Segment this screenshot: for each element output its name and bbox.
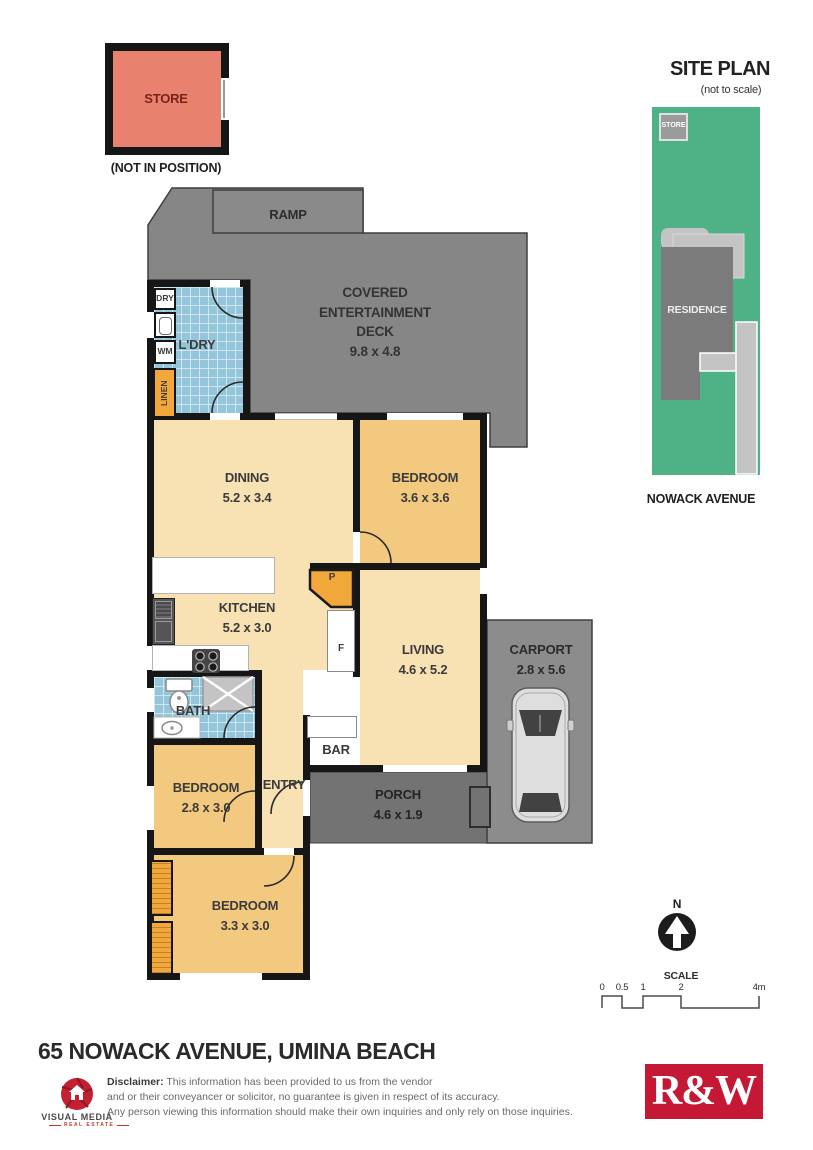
scale-title: SCALE [664, 970, 699, 982]
deck-line3: DECK [319, 322, 431, 342]
bedroom3-name: BEDROOM [212, 896, 279, 916]
store-unit-note: (NOT IN POSITION) [111, 161, 222, 175]
carport-name: CARPORT [510, 640, 573, 660]
carport-label: CARPORT 2.8 x 5.6 [510, 640, 573, 680]
deck-label: COVERED ENTERTAINMENT DECK 9.8 x 4.8 [319, 283, 431, 361]
carport-dims: 2.8 x 5.6 [510, 660, 573, 680]
bedroom2-dims: 2.8 x 3.0 [173, 798, 240, 818]
visual-media-name: VISUAL MEDIA [41, 1112, 113, 1122]
bar-label: BAR [322, 740, 350, 760]
washer-label: WM [157, 346, 172, 356]
linen-label: LINEN [153, 368, 176, 418]
kitchen-dims: 5.2 x 3.0 [219, 618, 275, 638]
disclaimer-line-1: Disclaimer: This information has been pr… [107, 1075, 573, 1090]
deck-line2: ENTERTAINMENT [319, 303, 431, 323]
disclaimer-label: Disclaimer: [107, 1076, 164, 1088]
living-label: LIVING 4.6 x 5.2 [399, 640, 448, 680]
bath-label: BATH [176, 701, 210, 721]
tagline-dash-right [117, 1125, 129, 1126]
porch-name: PORCH [374, 785, 423, 805]
visual-media-tagline: REAL ESTATE [49, 1122, 129, 1128]
dryer-label: DRY [156, 293, 174, 303]
fridge-space-label: F [338, 643, 344, 654]
ramp-label: RAMP [269, 205, 306, 225]
scale-tick-0: 0 [599, 982, 604, 993]
site-plan-subtitle: (not to scale) [701, 84, 762, 96]
north-label: N [673, 897, 681, 911]
disclaimer-text: Disclaimer: This information has been pr… [107, 1075, 573, 1120]
bedroom2-name: BEDROOM [173, 778, 240, 798]
living-dims: 4.6 x 5.2 [399, 660, 448, 680]
scale-tick-05: 0.5 [616, 982, 629, 993]
bedroom3-label: BEDROOM 3.3 x 3.0 [212, 896, 279, 936]
shower-icon [203, 677, 253, 711]
entry-label: ENTRY [263, 775, 306, 795]
cooktop-icon [192, 649, 220, 673]
bedroom1-name: BEDROOM [392, 468, 459, 488]
porch-dims: 4.6 x 1.9 [374, 805, 423, 825]
disclaimer-line1-text: This information has been provided to us… [166, 1076, 432, 1088]
bedroom1-dims: 3.6 x 3.6 [392, 488, 459, 508]
laundry-label: L'DRY [179, 335, 216, 355]
living-name: LIVING [399, 640, 448, 660]
site-store-label: STORE [662, 122, 686, 129]
dining-name: DINING [223, 468, 272, 488]
bedroom2-label: BEDROOM 2.8 x 3.0 [173, 778, 240, 818]
dining-dims: 5.2 x 3.4 [223, 488, 272, 508]
tagline-text: REAL ESTATE [64, 1122, 114, 1128]
site-plan-title: SITE PLAN [670, 58, 770, 81]
floorplan-page: STORE (NOT IN POSITION) SITE PLAN (not t… [0, 0, 813, 1150]
porch-label: PORCH 4.6 x 1.9 [374, 785, 423, 825]
rw-agency-logo: R&W [645, 1064, 763, 1119]
scale-tick-2: 2 [678, 982, 683, 993]
kitchen-name: KITCHEN [219, 598, 275, 618]
bedroom3-dims: 3.3 x 3.0 [212, 916, 279, 936]
deck-line1: COVERED [319, 283, 431, 303]
kitchen-label: KITCHEN 5.2 x 3.0 [219, 598, 275, 638]
disclaimer-line-3: Any person viewing this information shou… [107, 1105, 573, 1120]
disclaimer-line-2: and or their conveyancer or solicitor, n… [107, 1090, 573, 1105]
pantry-label: P [329, 572, 335, 583]
bedroom1-label: BEDROOM 3.6 x 3.6 [392, 468, 459, 508]
deck-dims: 9.8 x 4.8 [319, 342, 431, 362]
dining-label: DINING 5.2 x 3.4 [223, 468, 272, 508]
tagline-dash-left [49, 1125, 61, 1126]
store-unit-label: STORE [144, 89, 188, 109]
site-street-label: NOWACK AVENUE [647, 492, 756, 506]
scale-tick-4m: 4m [753, 982, 766, 993]
address-title: 65 NOWACK AVENUE, UMINA BEACH [38, 1038, 435, 1065]
scale-tick-1: 1 [640, 982, 645, 993]
site-residence-label: RESIDENCE [667, 304, 726, 316]
